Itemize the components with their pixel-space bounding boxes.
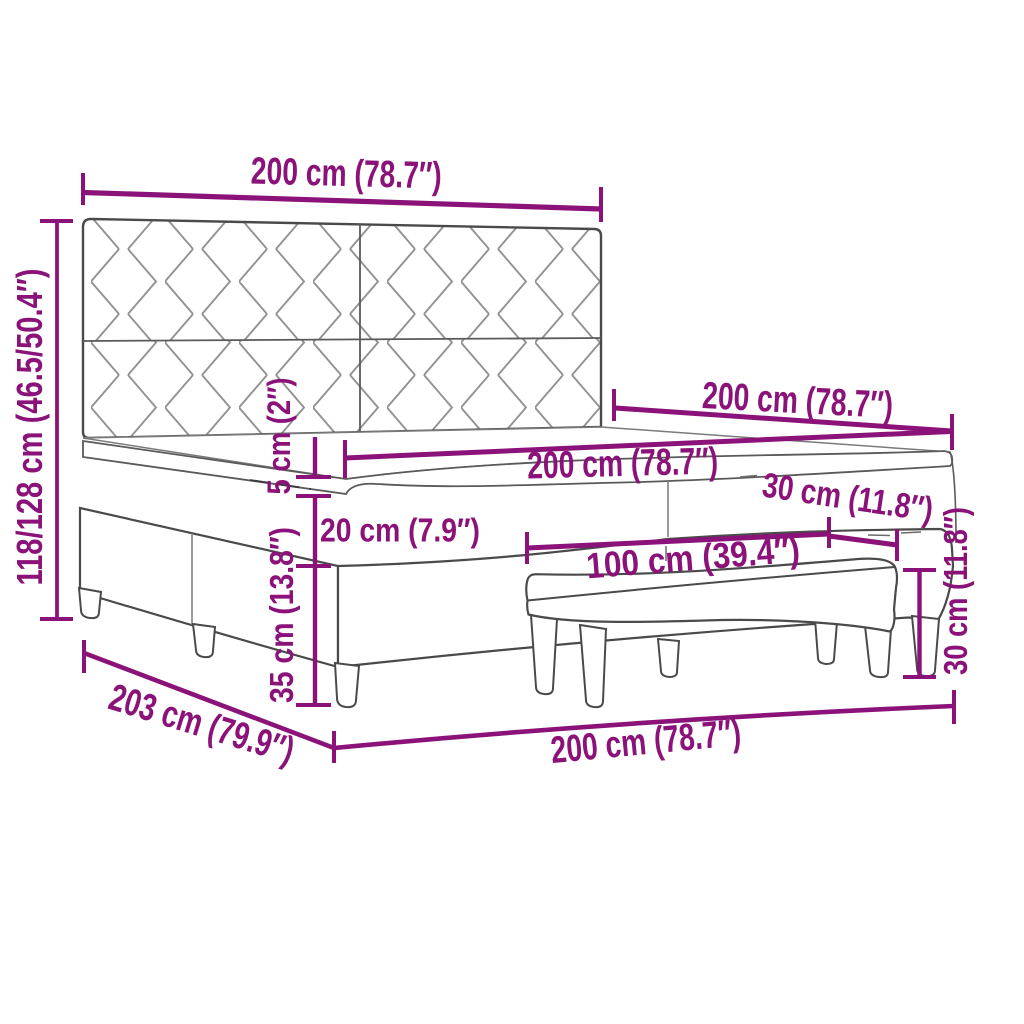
svg-text:200 cm (78.7″): 200 cm (78.7″) — [549, 712, 743, 772]
svg-text:200 cm (78.7″): 200 cm (78.7″) — [527, 441, 719, 488]
svg-text:200 cm (78.7″): 200 cm (78.7″) — [250, 151, 442, 198]
svg-text:35 cm (13.8″): 35 cm (13.8″) — [263, 527, 300, 703]
svg-text:5 cm (2″): 5 cm (2″) — [261, 378, 297, 495]
svg-text:118/128 cm (46.5/50.4″): 118/128 cm (46.5/50.4″) — [9, 269, 50, 586]
svg-text:30 cm (11.8″): 30 cm (11.8″) — [937, 507, 974, 675]
svg-text:20 cm (7.9″): 20 cm (7.9″) — [320, 512, 480, 549]
svg-text:200 cm (78.7″): 200 cm (78.7″) — [701, 375, 894, 427]
svg-text:30 cm (11.8″): 30 cm (11.8″) — [760, 466, 936, 530]
